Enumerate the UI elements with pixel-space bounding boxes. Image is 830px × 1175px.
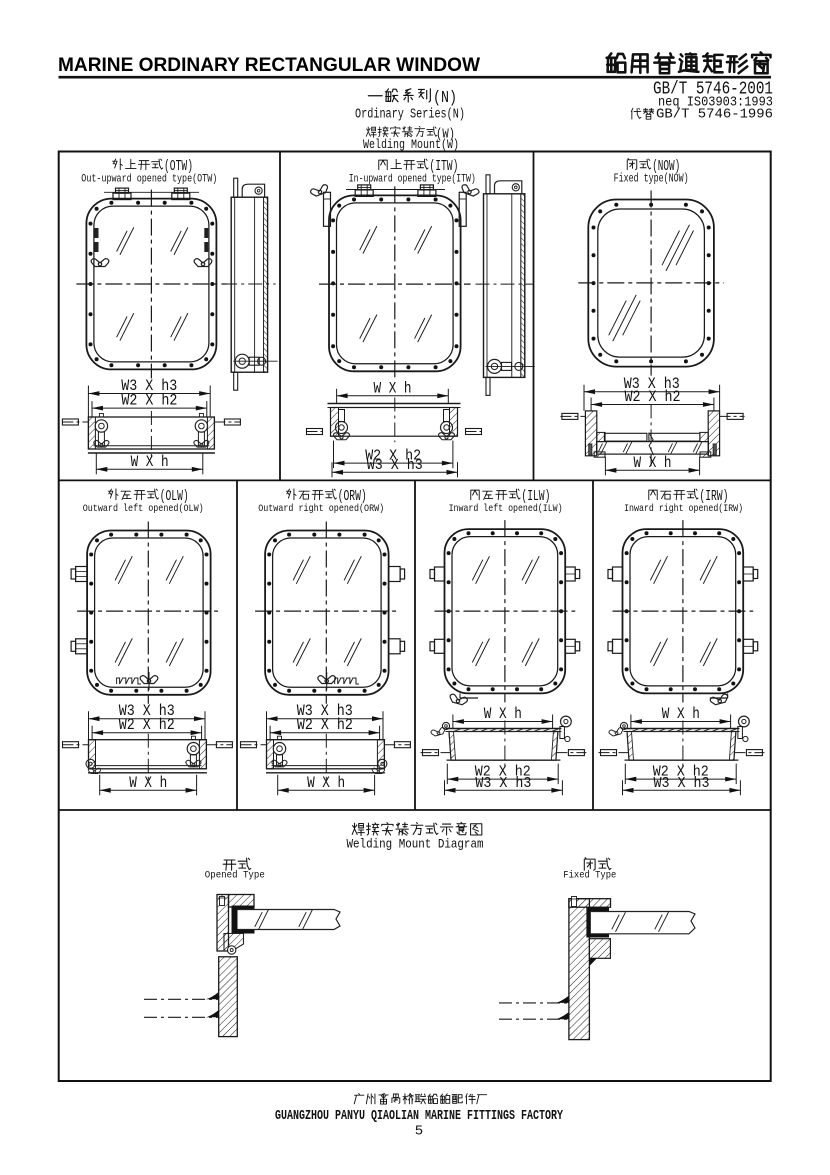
svg-text:Fixed Type: Fixed Type [563, 870, 616, 882]
svg-text:W3 X h3: W3 X h3 [367, 458, 423, 474]
svg-text:W X h: W X h [634, 454, 672, 472]
svg-text:GUANGZHOU PANYU QIAOLIAN MARIN: GUANGZHOU PANYU QIAOLIAN MARINE FITTINGS… [275, 1108, 563, 1124]
svg-text:Inward left opened(ILW): Inward left opened(ILW) [449, 503, 563, 515]
svg-text:W3 X h3: W3 X h3 [475, 776, 531, 792]
svg-text:W X h: W X h [131, 453, 169, 471]
svg-text:Out-upward opened type(OTW): Out-upward opened type(OTW) [81, 174, 217, 186]
svg-text:MARINE ORDINARY RECTANGULAR WI: MARINE ORDINARY RECTANGULAR WINDOW [58, 54, 481, 76]
svg-text:W3 X h3: W3 X h3 [654, 776, 710, 792]
svg-text:Welding Mount(W): Welding Mount(W) [363, 137, 459, 152]
svg-text:Outward left opened(OLW): Outward left opened(OLW) [83, 503, 204, 515]
svg-text:Welding Mount Diagram: Welding Mount Diagram [347, 838, 484, 852]
svg-text:W X h: W X h [307, 774, 345, 792]
svg-text:Fixed type(NOW): Fixed type(NOW) [614, 172, 689, 186]
svg-text:W X h: W X h [484, 705, 522, 723]
svg-text:(N): (N) [433, 89, 457, 108]
svg-text:W X h: W X h [374, 379, 412, 397]
svg-text:Outward right opened(ORW): Outward right opened(ORW) [258, 503, 384, 515]
svg-text:W X h: W X h [129, 774, 167, 792]
svg-text:W2 X h2: W2 X h2 [625, 388, 681, 406]
svg-text:5: 5 [415, 1124, 423, 1140]
svg-text:GB/T 5746-1996: GB/T 5746-1996 [656, 107, 773, 123]
svg-text:W2 X h2: W2 X h2 [297, 716, 353, 734]
svg-text:Ordinary Series(N): Ordinary Series(N) [355, 108, 465, 123]
svg-text:W2 X h2: W2 X h2 [121, 392, 177, 410]
svg-text:Inward right opened(IRW): Inward right opened(IRW) [624, 503, 743, 515]
svg-text:Opened Type: Opened Type [205, 870, 265, 882]
svg-text:W2 X h2: W2 X h2 [119, 716, 175, 734]
svg-text:W X h: W X h [662, 705, 700, 723]
svg-text:In-upward opened type(ITW): In-upward opened type(ITW) [349, 174, 476, 186]
